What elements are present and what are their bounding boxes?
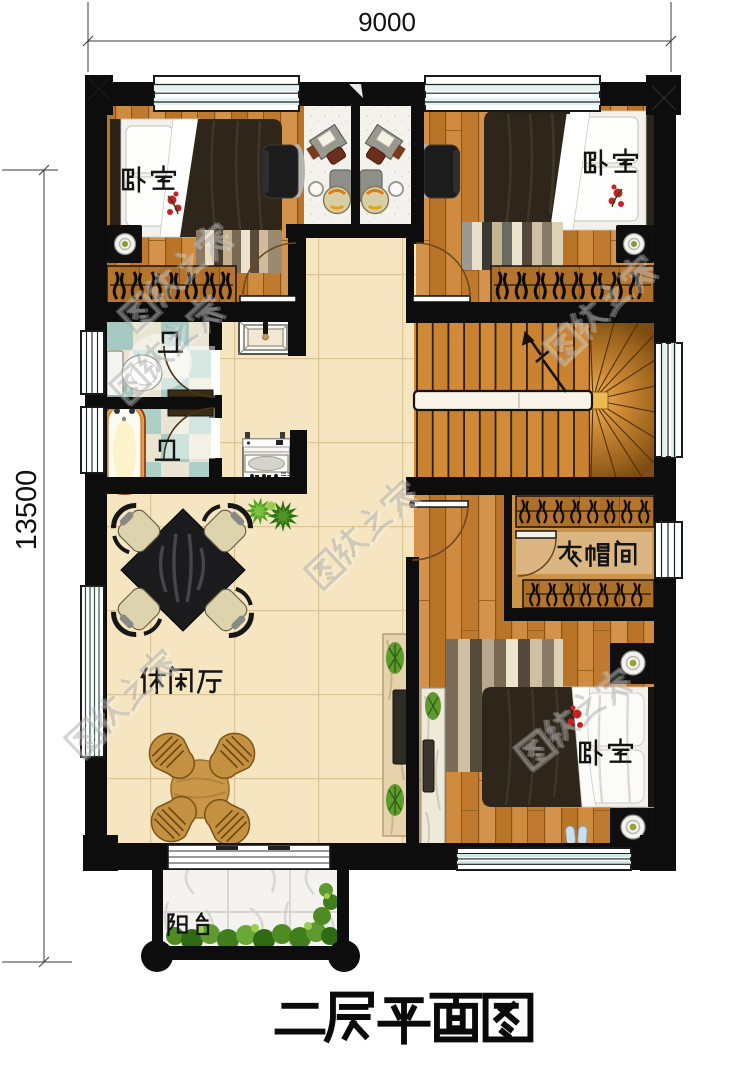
svg-text:9000: 9000 [358,7,416,37]
svg-text:13500: 13500 [11,470,43,551]
